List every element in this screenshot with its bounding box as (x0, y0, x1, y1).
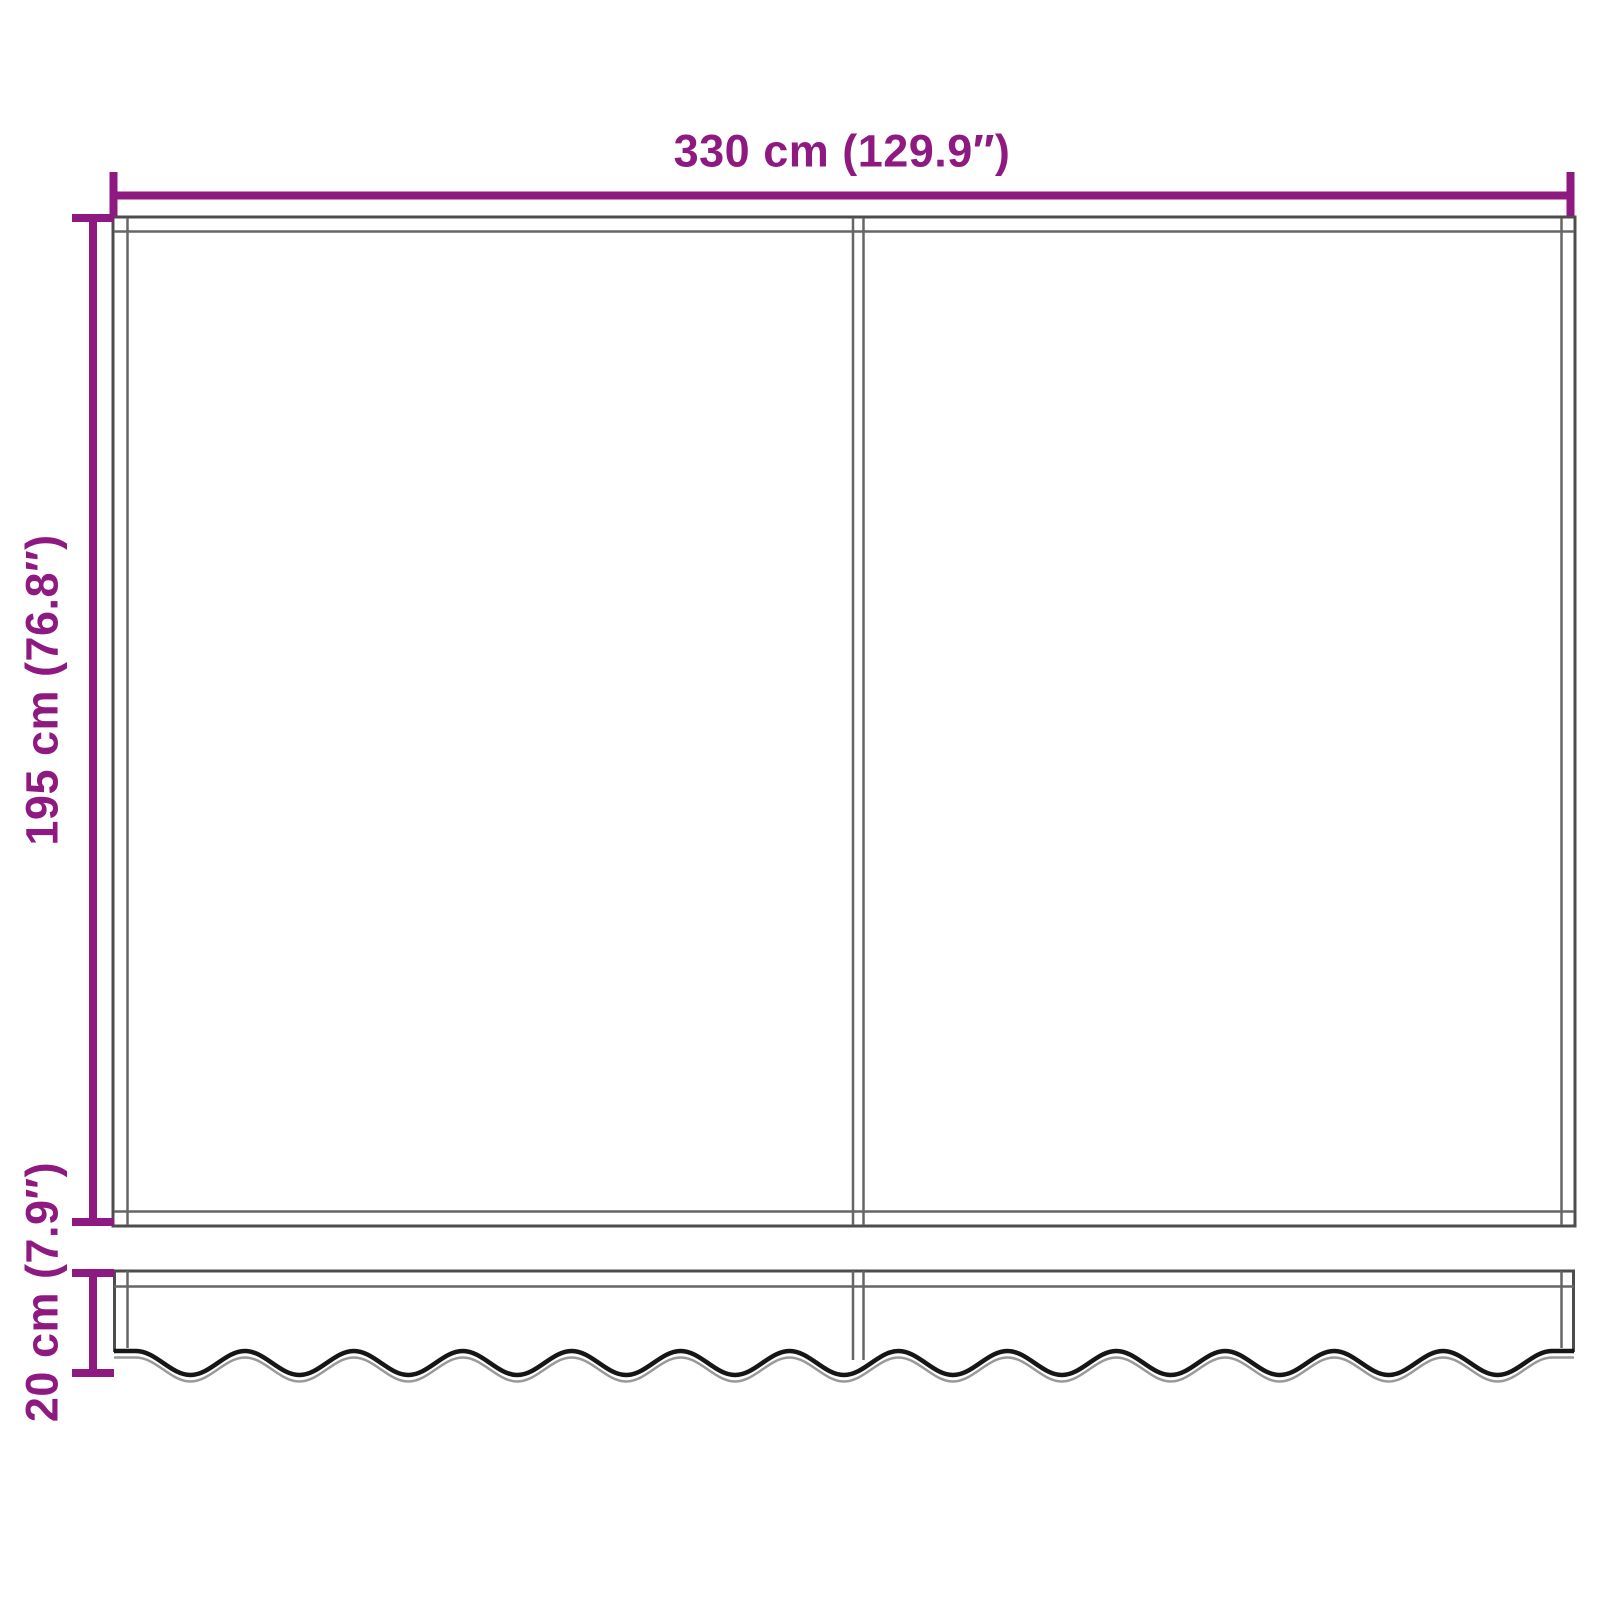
width-dimension-line (113, 172, 1571, 216)
valance-dimension-label: 20 cm (7.9″) (17, 1162, 68, 1422)
height-dimension-label: 195 cm (76.8″) (17, 534, 68, 845)
height-dimension-line (72, 218, 114, 1223)
valance (113, 1270, 1575, 1382)
width-dimension-label: 330 cm (129.9″) (674, 126, 1011, 177)
fabric-panel (113, 217, 1575, 1226)
valance-dimension-line (72, 1273, 114, 1373)
awning-dimension-drawing: 330 cm (129.9″) 195 cm (76.8″) 20 cm (7.… (0, 0, 1600, 1600)
dimension-diagram: 330 cm (129.9″) 195 cm (76.8″) 20 cm (7.… (0, 0, 1600, 1600)
valance-scallop-edge (114, 1351, 1574, 1375)
fabric-panel-outline (113, 217, 1575, 1226)
